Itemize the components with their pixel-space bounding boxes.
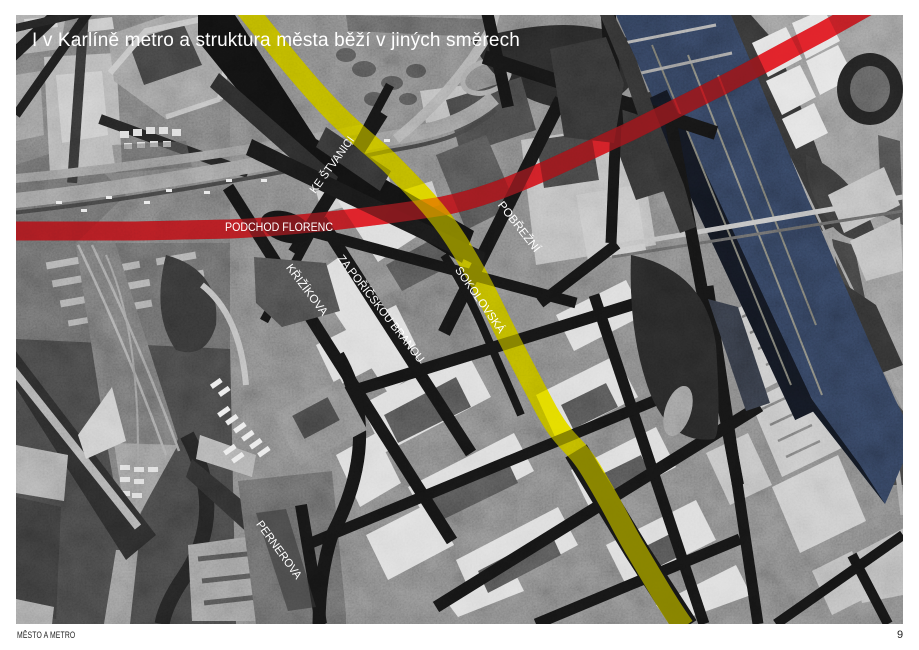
svg-text:PODCHOD FLORENC: PODCHOD FLORENC (225, 220, 333, 234)
svg-text:I v Karlíně metro a struktura: I v Karlíně metro a struktura města běží… (32, 30, 520, 51)
